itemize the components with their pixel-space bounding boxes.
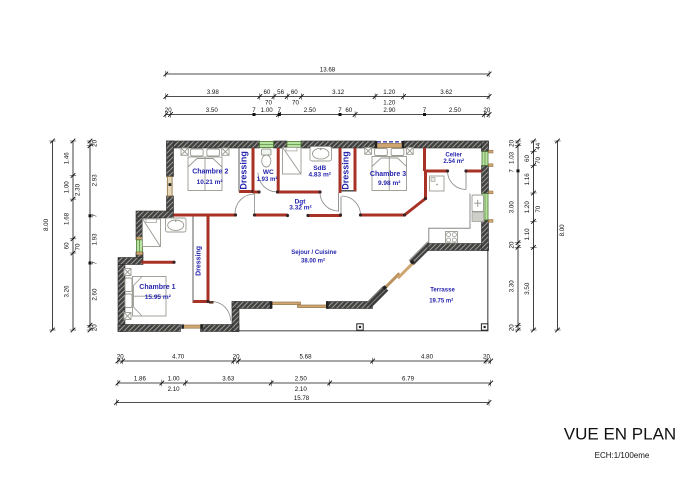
svg-text:13.68: 13.68 bbox=[320, 66, 336, 73]
svg-text:20: 20 bbox=[509, 139, 516, 146]
svg-text:20: 20 bbox=[165, 107, 172, 114]
svg-text:20: 20 bbox=[483, 107, 490, 114]
svg-text:2.60: 2.60 bbox=[91, 288, 98, 301]
svg-text:1.46: 1.46 bbox=[64, 152, 71, 165]
svg-text:Dressing: Dressing bbox=[196, 246, 203, 276]
svg-text:4.80: 4.80 bbox=[421, 353, 434, 360]
svg-text:7: 7 bbox=[278, 107, 282, 114]
svg-text:3.26: 3.26 bbox=[64, 285, 71, 298]
svg-text:5.68: 5.68 bbox=[299, 353, 312, 360]
svg-text:10.21 m²: 10.21 m² bbox=[197, 179, 224, 186]
svg-text:8.00: 8.00 bbox=[43, 218, 50, 231]
svg-text:7: 7 bbox=[91, 261, 98, 265]
svg-text:70: 70 bbox=[535, 157, 542, 164]
svg-text:VUE EN PLAN: VUE EN PLAN bbox=[564, 425, 676, 444]
svg-text:20: 20 bbox=[233, 353, 240, 360]
svg-text:Terrasse: Terrasse bbox=[430, 288, 455, 294]
svg-text:1.20: 1.20 bbox=[383, 100, 396, 107]
svg-text:Chambre 3: Chambre 3 bbox=[370, 171, 406, 178]
svg-text:60: 60 bbox=[64, 242, 71, 249]
svg-text:20: 20 bbox=[117, 353, 124, 360]
svg-text:Chambre 1: Chambre 1 bbox=[139, 284, 175, 291]
svg-text:2.54 m²: 2.54 m² bbox=[443, 158, 464, 165]
svg-text:19.75 m²: 19.75 m² bbox=[429, 297, 453, 304]
svg-text:7: 7 bbox=[252, 107, 256, 114]
svg-text:20: 20 bbox=[509, 324, 516, 331]
svg-text:3.62: 3.62 bbox=[440, 89, 453, 96]
svg-text:3.98: 3.98 bbox=[207, 89, 220, 96]
svg-text:1.93: 1.93 bbox=[91, 233, 98, 246]
svg-text:60: 60 bbox=[524, 155, 531, 162]
svg-text:60: 60 bbox=[263, 89, 270, 96]
svg-text:70: 70 bbox=[292, 100, 299, 107]
svg-text:70: 70 bbox=[74, 243, 81, 250]
svg-text:2.10: 2.10 bbox=[168, 386, 181, 393]
svg-text:7: 7 bbox=[91, 214, 98, 218]
svg-text:3.50: 3.50 bbox=[524, 282, 531, 295]
svg-text:20: 20 bbox=[509, 241, 516, 248]
svg-text:4.83 m²: 4.83 m² bbox=[308, 172, 331, 179]
svg-text:60: 60 bbox=[291, 89, 298, 96]
svg-text:Celier: Celier bbox=[445, 153, 462, 159]
svg-text:2.93: 2.93 bbox=[91, 174, 98, 187]
svg-text:44: 44 bbox=[535, 142, 542, 149]
svg-text:1.86: 1.86 bbox=[134, 375, 147, 382]
svg-text:3.50: 3.50 bbox=[206, 107, 219, 114]
svg-text:56: 56 bbox=[277, 89, 284, 96]
svg-text:6.79: 6.79 bbox=[402, 375, 415, 382]
svg-text:70: 70 bbox=[535, 205, 542, 212]
svg-text:2.30: 2.30 bbox=[74, 183, 81, 196]
svg-text:20: 20 bbox=[483, 353, 490, 360]
svg-text:2.50: 2.50 bbox=[449, 107, 462, 114]
svg-text:ECH:1/100eme: ECH:1/100eme bbox=[595, 451, 650, 460]
svg-text:2.10: 2.10 bbox=[295, 386, 308, 393]
svg-text:70: 70 bbox=[265, 100, 272, 107]
svg-text:4.70: 4.70 bbox=[172, 353, 185, 360]
svg-text:15.78: 15.78 bbox=[294, 395, 310, 402]
svg-text:1.03: 1.03 bbox=[509, 151, 516, 164]
svg-text:1.00: 1.00 bbox=[64, 181, 71, 194]
svg-text:15.95 m²: 15.95 m² bbox=[145, 294, 172, 301]
svg-text:1.68: 1.68 bbox=[64, 212, 71, 225]
svg-text:Sejour / Cuisine: Sejour / Cuisine bbox=[291, 250, 337, 256]
svg-text:Chambre 2: Chambre 2 bbox=[192, 169, 228, 176]
svg-text:9.98 m²: 9.98 m² bbox=[378, 180, 401, 187]
svg-text:1.00: 1.00 bbox=[261, 107, 274, 114]
svg-text:3.32 m²: 3.32 m² bbox=[289, 204, 312, 211]
svg-text:WC: WC bbox=[263, 169, 274, 176]
svg-text:Dressing: Dressing bbox=[239, 151, 249, 190]
svg-text:60: 60 bbox=[345, 107, 352, 114]
svg-text:1.00: 1.00 bbox=[168, 375, 181, 382]
svg-text:20: 20 bbox=[91, 324, 98, 331]
svg-text:3.00: 3.00 bbox=[509, 201, 516, 214]
svg-text:2.90: 2.90 bbox=[383, 107, 396, 114]
svg-text:3.63: 3.63 bbox=[222, 375, 235, 382]
svg-text:8.00: 8.00 bbox=[559, 224, 566, 237]
svg-text:7: 7 bbox=[423, 107, 427, 114]
svg-text:1.93 m²: 1.93 m² bbox=[257, 176, 278, 183]
svg-text:7: 7 bbox=[338, 107, 342, 114]
svg-text:1.10: 1.10 bbox=[524, 228, 531, 241]
svg-text:20: 20 bbox=[91, 139, 98, 146]
svg-text:1.16: 1.16 bbox=[524, 173, 531, 186]
svg-text:1.20: 1.20 bbox=[383, 89, 396, 96]
svg-text:3.12: 3.12 bbox=[332, 89, 345, 96]
svg-text:2.50: 2.50 bbox=[304, 107, 317, 114]
svg-text:7: 7 bbox=[509, 169, 516, 173]
svg-text:38.00 m²: 38.00 m² bbox=[301, 258, 325, 265]
svg-text:Dressing: Dressing bbox=[341, 151, 351, 190]
svg-text:1.20: 1.20 bbox=[524, 201, 531, 214]
svg-text:3.30: 3.30 bbox=[509, 280, 516, 293]
svg-text:2.50: 2.50 bbox=[295, 375, 308, 382]
